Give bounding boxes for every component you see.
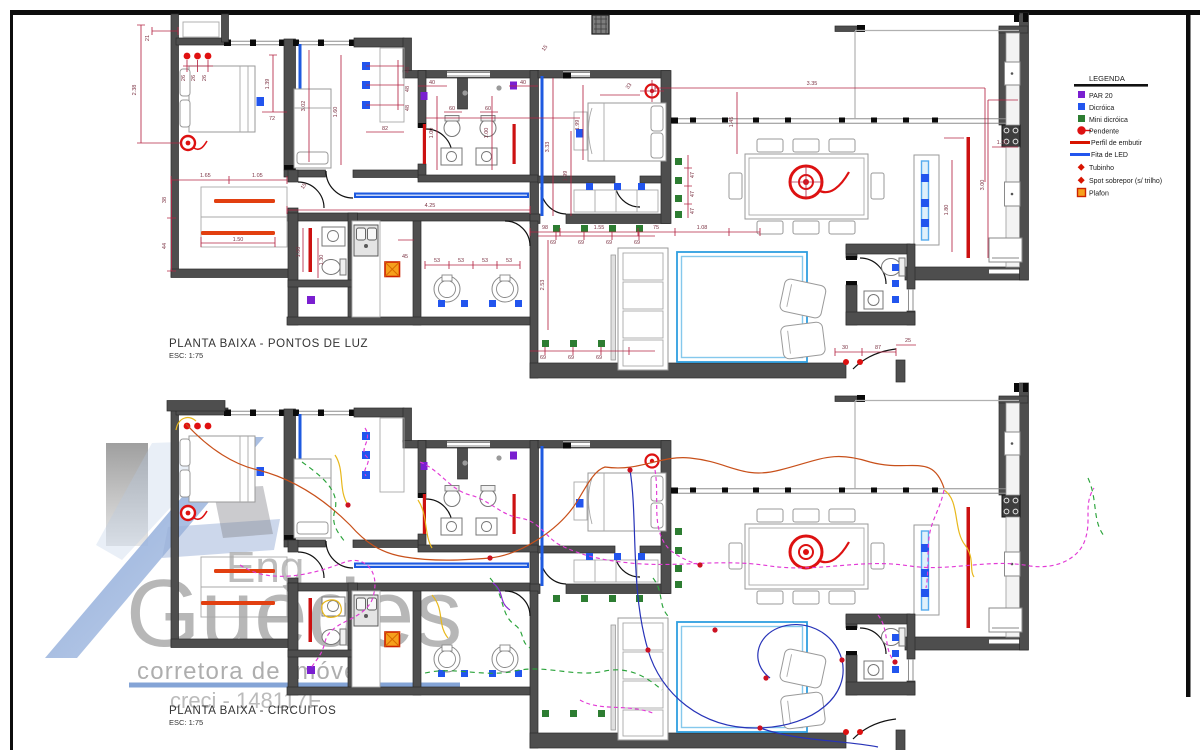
svg-text:1.80: 1.80 — [944, 205, 950, 216]
svg-text:3.00: 3.00 — [980, 180, 986, 191]
svg-text:PLANTA BAIXA - CIRCUITOS: PLANTA BAIXA - CIRCUITOS — [169, 705, 336, 717]
svg-text:69: 69 — [578, 240, 584, 246]
svg-text:21: 21 — [145, 35, 151, 41]
svg-text:30: 30 — [842, 345, 848, 351]
svg-text:53: 53 — [482, 258, 488, 264]
svg-text:1.39: 1.39 — [265, 79, 271, 90]
svg-text:53: 53 — [434, 258, 440, 264]
svg-text:Plafon: Plafon — [1089, 191, 1109, 198]
svg-text:3.35: 3.35 — [807, 81, 818, 87]
svg-text:3.33: 3.33 — [545, 142, 551, 153]
svg-text:1.45: 1.45 — [729, 117, 735, 128]
svg-text:1.35: 1.35 — [997, 140, 1008, 146]
svg-text:Fita de LED: Fita de LED — [1091, 152, 1128, 159]
svg-text:87: 87 — [875, 345, 881, 351]
svg-text:72: 72 — [269, 116, 275, 122]
svg-text:Dicróica: Dicróica — [1089, 105, 1114, 112]
svg-text:48: 48 — [405, 67, 411, 73]
svg-text:Mini dicróica: Mini dicróica — [1089, 117, 1128, 124]
svg-text:47: 47 — [690, 191, 696, 197]
svg-text:38: 38 — [162, 197, 168, 203]
svg-text:1.99: 1.99 — [563, 171, 569, 182]
svg-text:40: 40 — [429, 80, 435, 86]
svg-text:25: 25 — [905, 338, 911, 344]
svg-text:1.00: 1.00 — [296, 247, 302, 258]
svg-text:69: 69 — [596, 355, 602, 361]
svg-text:ESC: 1:75: ESC: 1:75 — [169, 351, 203, 360]
svg-text:48: 48 — [405, 105, 411, 111]
svg-text:82: 82 — [382, 126, 388, 132]
svg-text:44: 44 — [162, 243, 168, 249]
svg-text:69: 69 — [606, 240, 612, 246]
svg-text:60: 60 — [449, 106, 455, 112]
svg-text:Tubinho: Tubinho — [1089, 165, 1114, 172]
svg-text:60: 60 — [485, 106, 491, 112]
svg-text:40: 40 — [520, 80, 526, 86]
svg-text:69: 69 — [568, 355, 574, 361]
svg-text:1.00: 1.00 — [429, 128, 435, 139]
svg-text:1.50: 1.50 — [233, 237, 244, 243]
svg-text:Spot sobrepor (s/ trilho): Spot sobrepor (s/ trilho) — [1089, 178, 1162, 185]
svg-text:45: 45 — [402, 254, 408, 260]
svg-text:PLANTA BAIXA - PONTOS DE LUZ: PLANTA BAIXA - PONTOS DE LUZ — [169, 338, 368, 350]
svg-text:4.25: 4.25 — [425, 203, 436, 209]
svg-text:47: 47 — [690, 172, 696, 178]
svg-text:1.65: 1.65 — [200, 173, 211, 179]
svg-text:2.53: 2.53 — [540, 280, 546, 291]
svg-text:26: 26 — [181, 75, 187, 81]
svg-text:26: 26 — [191, 75, 197, 81]
svg-text:LEGENDA: LEGENDA — [1089, 74, 1125, 83]
svg-text:69: 69 — [550, 240, 556, 246]
svg-text:PAR 20: PAR 20 — [1089, 93, 1113, 100]
svg-text:98: 98 — [542, 225, 548, 231]
svg-text:Pendente: Pendente — [1089, 129, 1119, 136]
svg-text:1.08: 1.08 — [697, 225, 708, 231]
svg-text:1.30: 1.30 — [319, 255, 325, 266]
svg-text:47: 47 — [690, 208, 696, 214]
svg-text:69: 69 — [540, 355, 546, 361]
svg-text:53: 53 — [506, 258, 512, 264]
svg-text:corretora de imóveis: corretora de imóveis — [137, 658, 378, 685]
svg-text:1.99: 1.99 — [575, 120, 581, 131]
svg-text:Perfil de embutir: Perfil de embutir — [1091, 140, 1143, 147]
svg-text:69: 69 — [634, 240, 640, 246]
svg-text:ESC: 1:75: ESC: 1:75 — [169, 718, 203, 727]
svg-text:1.60: 1.60 — [333, 107, 339, 118]
svg-text:3.02: 3.02 — [301, 101, 307, 112]
svg-text:2.38: 2.38 — [132, 85, 138, 96]
svg-text:26: 26 — [202, 75, 208, 81]
svg-text:1.05: 1.05 — [252, 173, 263, 179]
svg-text:53: 53 — [458, 258, 464, 264]
svg-text:75: 75 — [653, 225, 659, 231]
svg-text:1.00: 1.00 — [484, 128, 490, 139]
svg-text:1.55: 1.55 — [594, 225, 605, 231]
svg-text:48: 48 — [405, 86, 411, 92]
